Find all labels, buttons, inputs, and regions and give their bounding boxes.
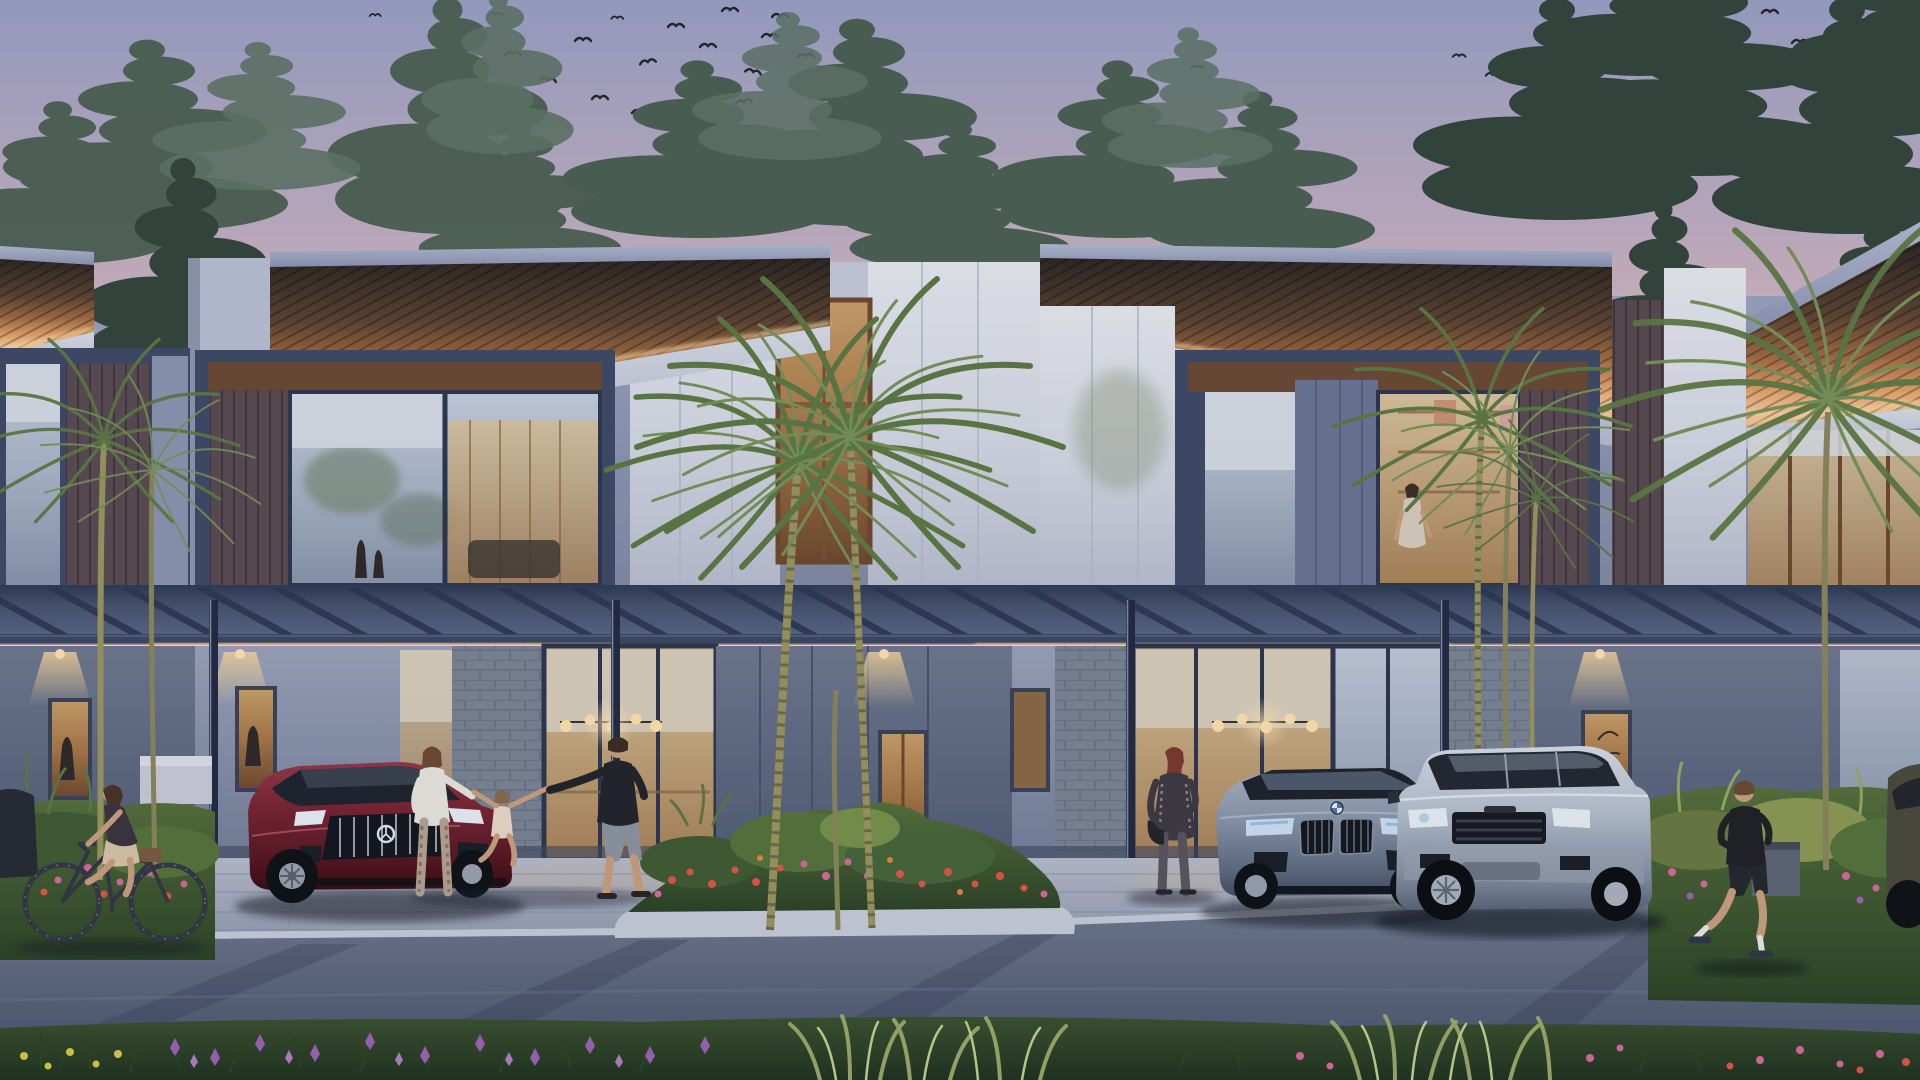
dusk-vignette: [0, 0, 1920, 1080]
scene-rendering: Modern two-storey townhouse row at dusk …: [0, 0, 1920, 1080]
rendering-viewport: Modern two-storey townhouse row at dusk …: [0, 0, 1920, 1080]
